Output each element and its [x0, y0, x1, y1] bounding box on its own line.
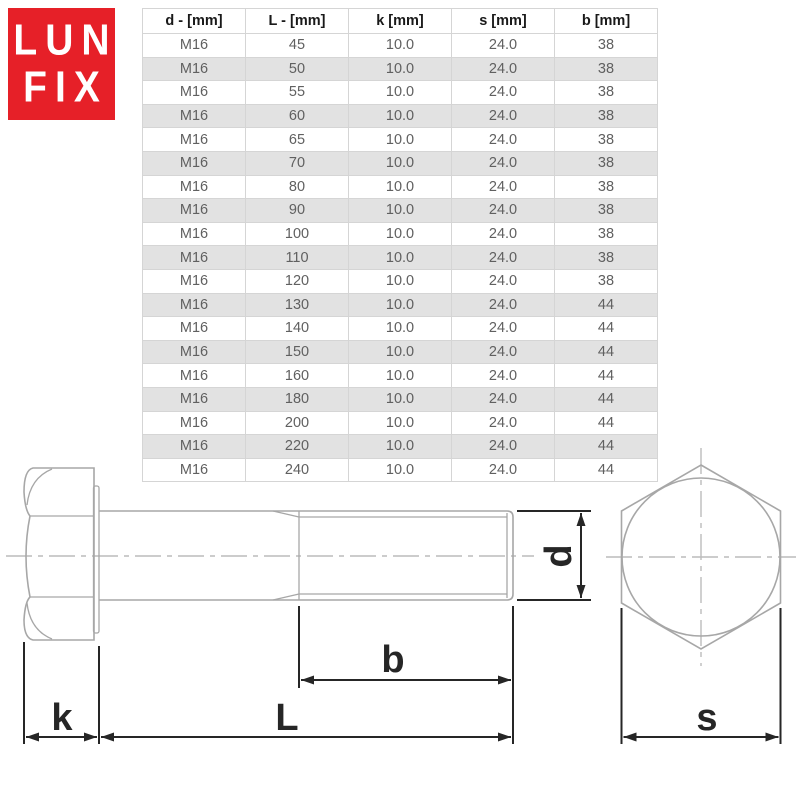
head-chamfer-arc-top [27, 469, 52, 505]
L-label: L [275, 697, 298, 739]
bolt-drawing: k L b d s [0, 0, 800, 800]
head-chamfer-arc-bottom [27, 603, 52, 639]
d-label: d [538, 544, 580, 567]
dimension-L: L [101, 606, 513, 744]
thread-runout-bottom [273, 594, 299, 600]
bolt-side-view [6, 468, 534, 640]
bolt-head [24, 468, 94, 640]
dimension-b: b [299, 606, 511, 688]
thread-runout-top [273, 511, 299, 517]
bolt-end-view [606, 448, 796, 666]
dimension-k: k [24, 642, 99, 744]
page: LUN FIX d - [mm] L - [mm] k [mm] s [mm] … [0, 0, 800, 800]
s-label: s [696, 697, 717, 739]
k-label: k [51, 697, 73, 739]
b-label: b [381, 639, 404, 681]
